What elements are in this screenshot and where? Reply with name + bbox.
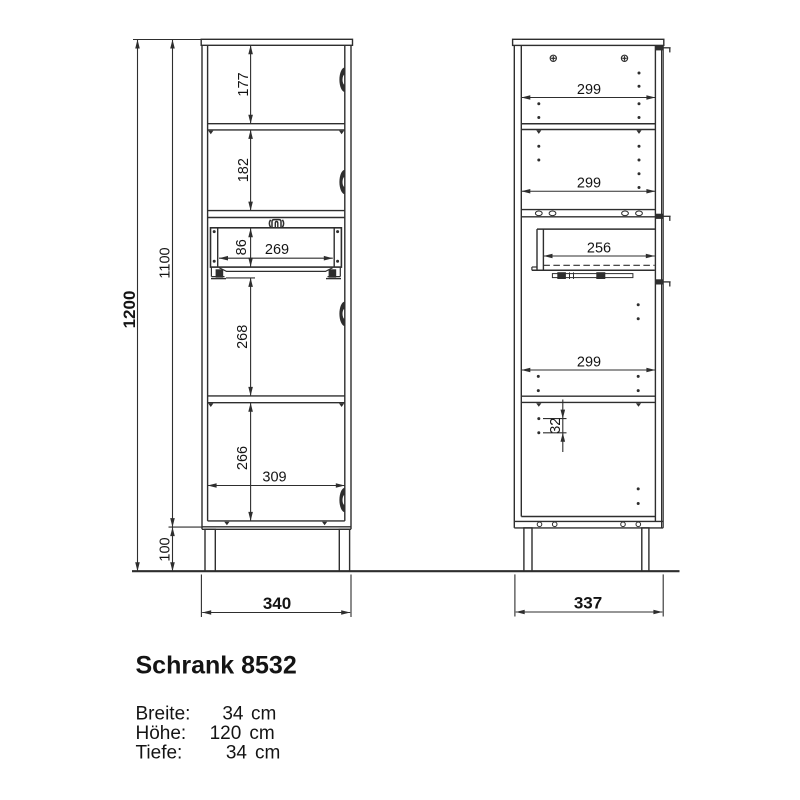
svg-text:Breite:: Breite:: [136, 703, 191, 724]
svg-text:299: 299: [577, 176, 601, 192]
svg-text:34: 34: [222, 703, 244, 724]
svg-text:182: 182: [236, 158, 252, 182]
svg-text:86: 86: [234, 239, 250, 255]
svg-text:299: 299: [577, 354, 601, 370]
svg-text:34: 34: [226, 742, 248, 763]
svg-text:1100: 1100: [158, 247, 174, 278]
svg-text:177: 177: [236, 72, 252, 96]
svg-text:Höhe:: Höhe:: [136, 723, 187, 744]
svg-text:309: 309: [262, 470, 286, 486]
svg-text:cm: cm: [251, 703, 276, 724]
svg-text:100: 100: [158, 537, 174, 561]
svg-text:269: 269: [265, 242, 289, 258]
svg-text:Tiefe:: Tiefe:: [136, 742, 183, 763]
svg-text:266: 266: [235, 446, 251, 470]
svg-text:cm: cm: [249, 723, 274, 744]
svg-text:299: 299: [577, 82, 601, 98]
svg-text:cm: cm: [255, 742, 280, 763]
svg-text:337: 337: [574, 593, 602, 612]
svg-text:120: 120: [210, 723, 242, 744]
svg-text:256: 256: [587, 240, 611, 256]
svg-text:1200: 1200: [120, 291, 139, 329]
svg-text:268: 268: [235, 325, 251, 349]
svg-text:340: 340: [263, 594, 291, 613]
svg-text:Schrank 8532: Schrank 8532: [136, 652, 297, 680]
svg-text:32: 32: [548, 418, 564, 434]
